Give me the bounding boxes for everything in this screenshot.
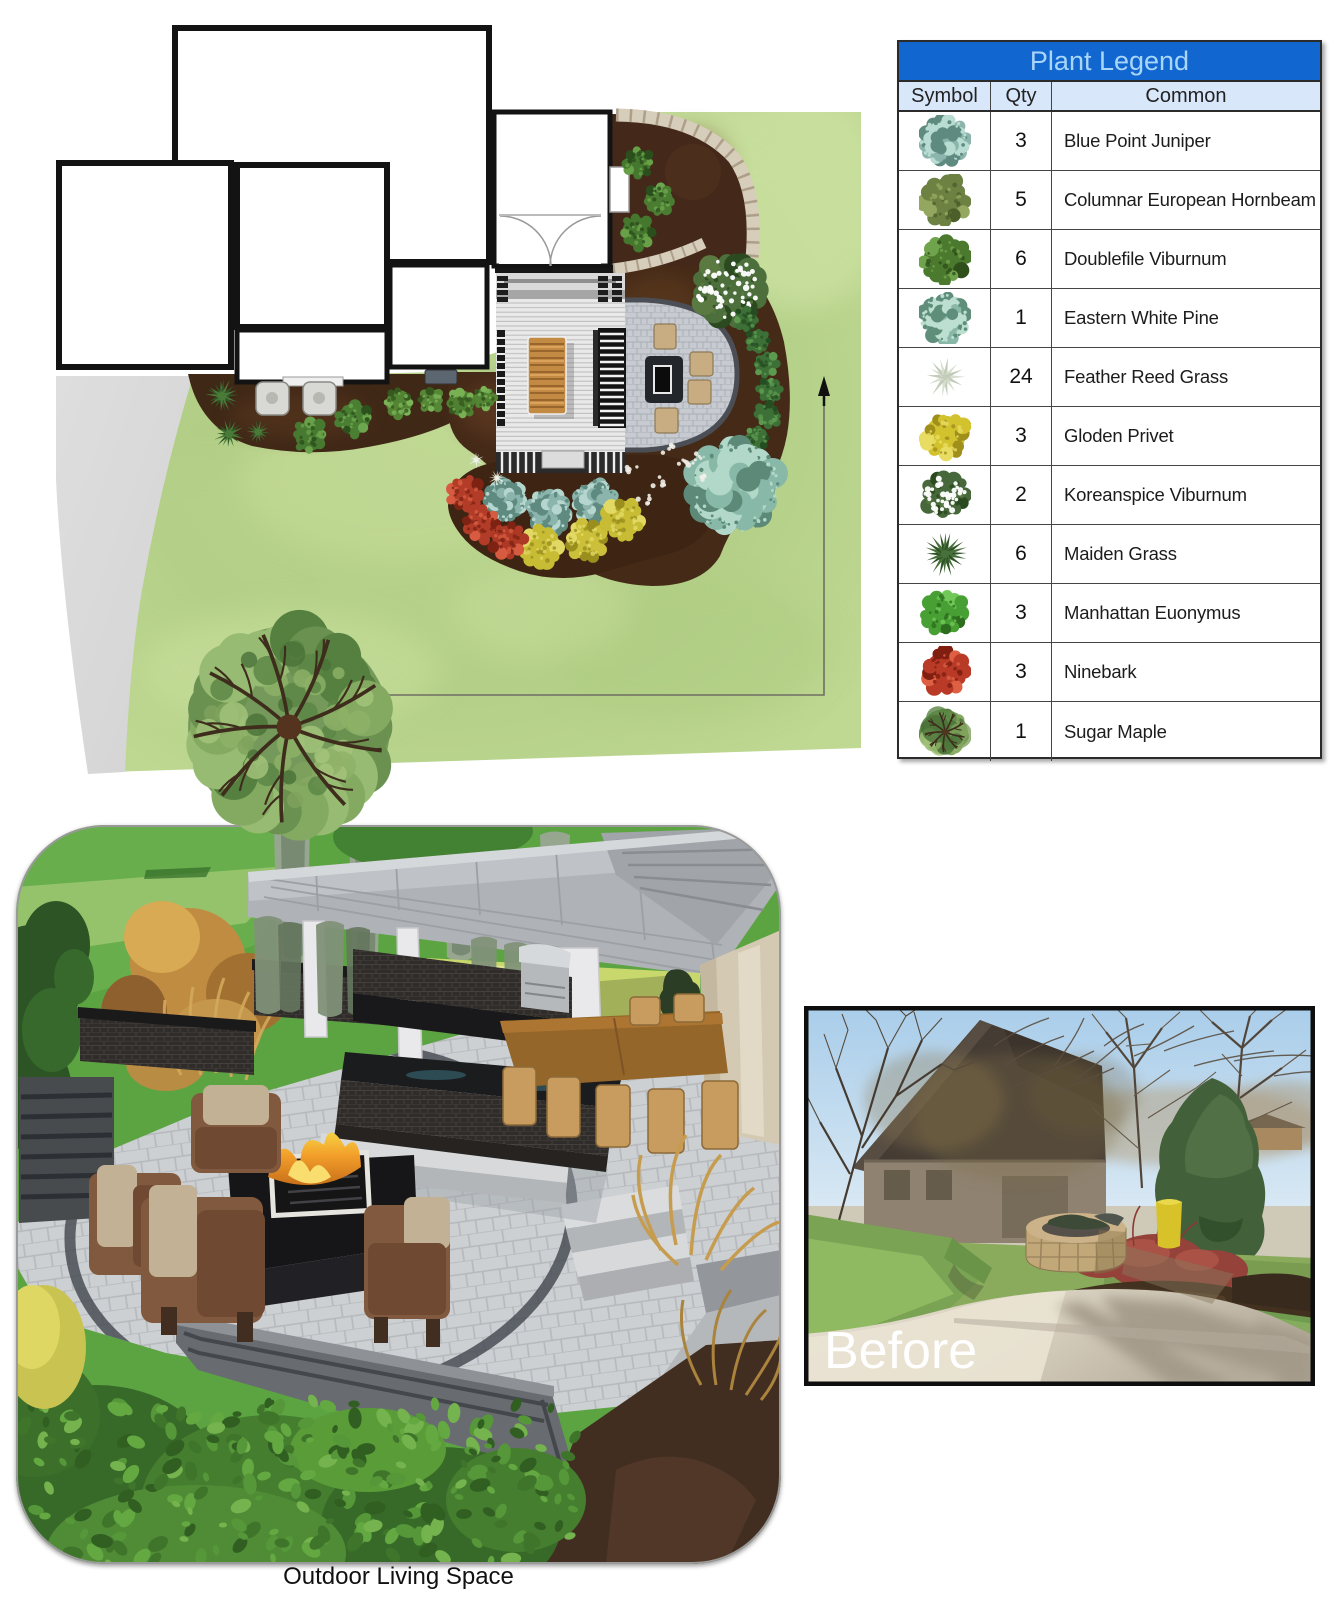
svg-text:Before: Before bbox=[824, 1322, 977, 1380]
